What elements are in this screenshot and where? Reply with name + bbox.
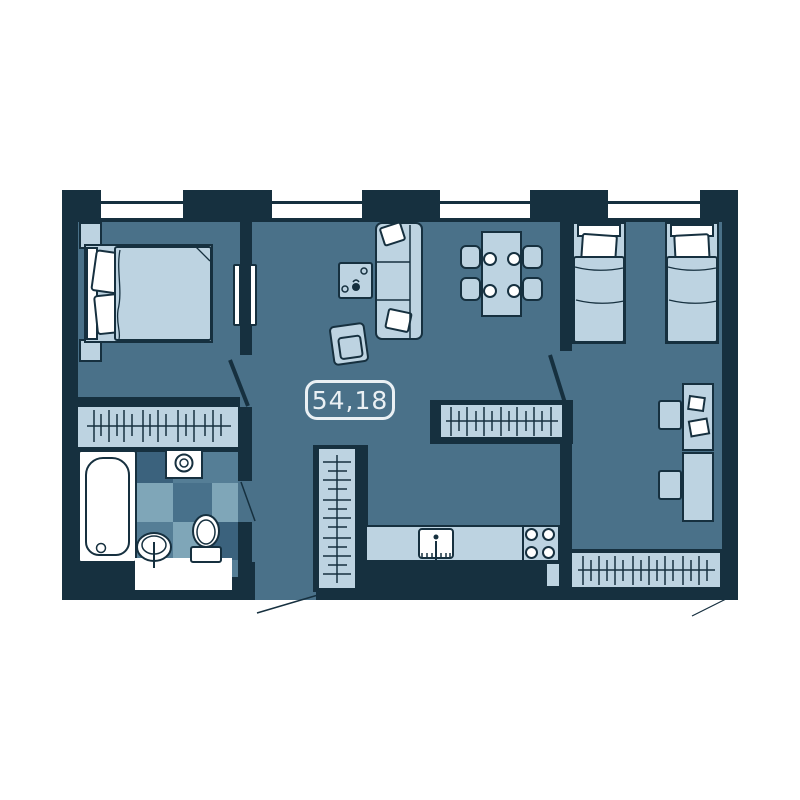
kitchen-sink-details: [422, 535, 450, 570]
door-swing: [230, 360, 248, 406]
blanket-folds: [118, 247, 210, 339]
wardrobe-hangers: [578, 556, 715, 585]
area-label: 54,18: [305, 380, 395, 420]
bathroom-sink: [137, 533, 171, 568]
washing-machine-door: [176, 455, 193, 472]
bathtub-drain: [97, 544, 106, 553]
wardrobe-hangers: [87, 410, 231, 442]
sofa-seams: [377, 225, 410, 338]
toilet: [191, 515, 221, 562]
plan-line-overlay: [0, 0, 800, 800]
area-value: 54,18: [312, 386, 389, 415]
wardrobe-hangers: [446, 407, 558, 436]
blanket-folds: [575, 267, 717, 303]
bathroom-door-swing: [241, 482, 255, 521]
coffee-table-decor: [342, 268, 367, 292]
entrance-door-swing: [257, 595, 318, 613]
door-swing: [550, 355, 565, 403]
wardrobe-hangers: [323, 455, 351, 583]
floorplan-page: { "plan": { "area_label": "54,18", "colo…: [0, 0, 800, 800]
door-swing: [692, 599, 726, 616]
